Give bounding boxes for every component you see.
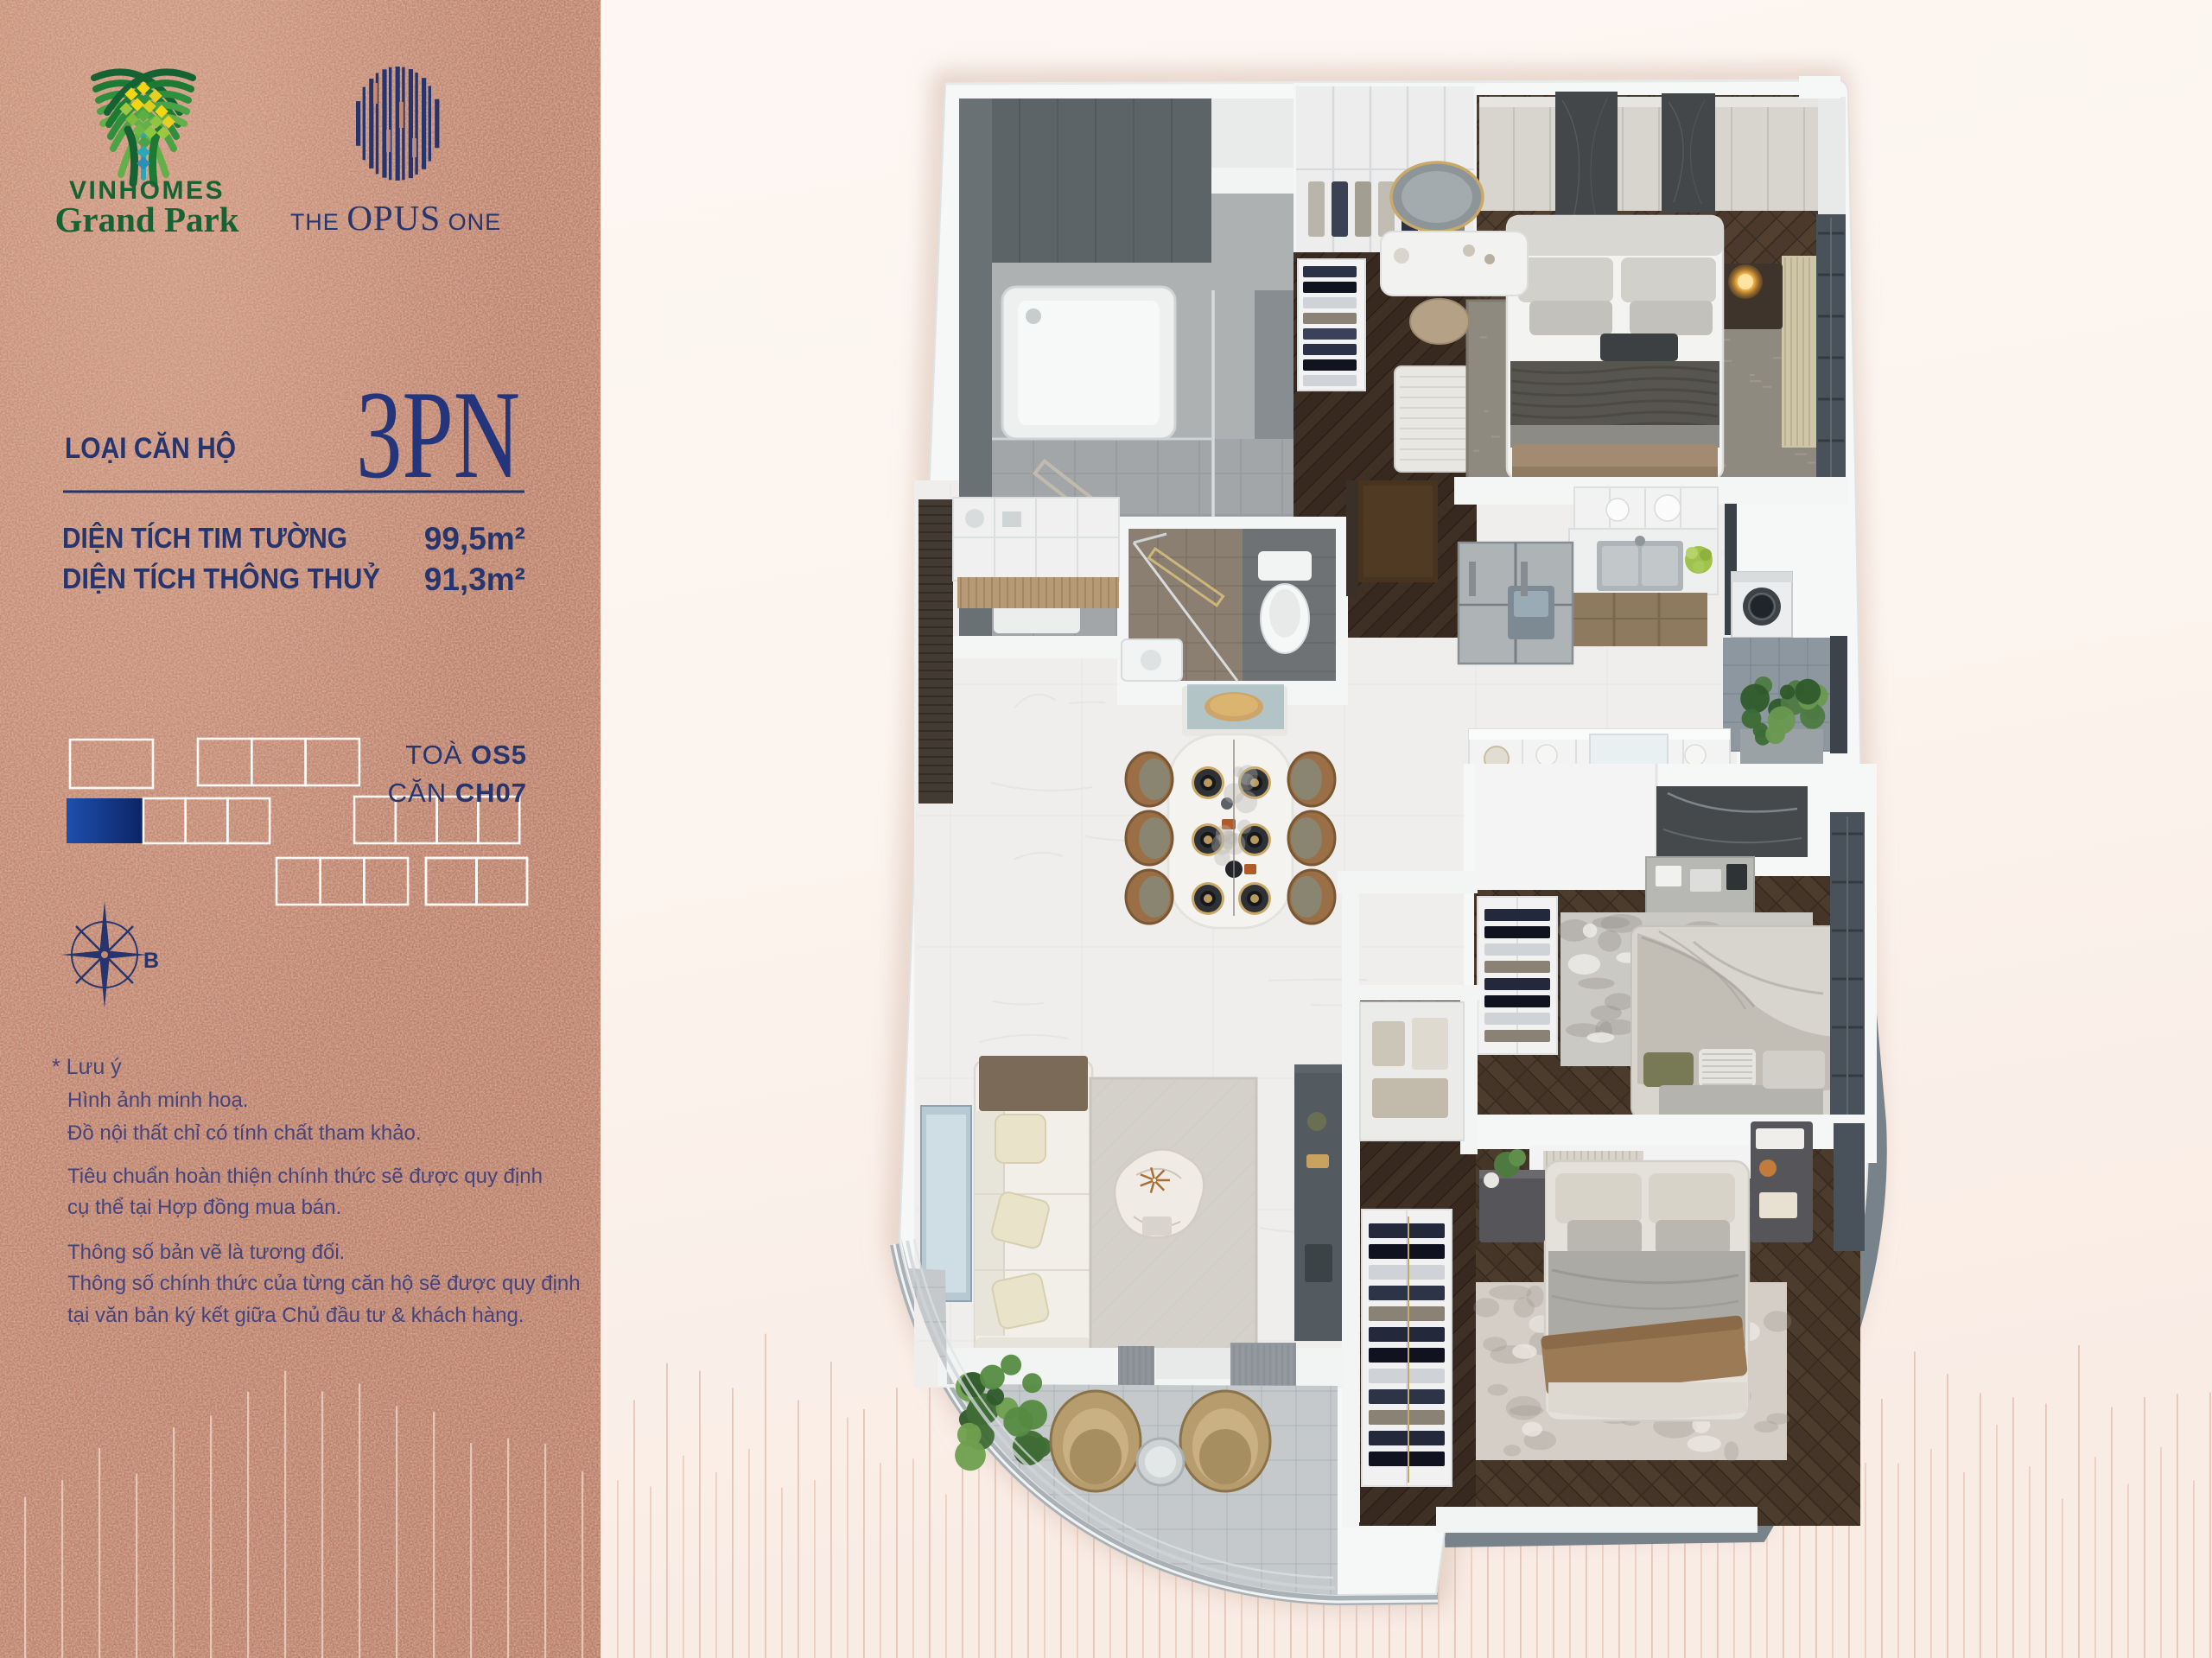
svg-text:tại văn bản ký kết giữa Chủ đầ: tại văn bản ký kết giữa Chủ đầu tư & khá… <box>67 1304 524 1327</box>
svg-text:DIỆN TÍCH TIM TƯỜNG: DIỆN TÍCH TIM TƯỜNG <box>62 522 347 554</box>
svg-text:Hình ảnh minh hoạ.: Hình ảnh minh hoạ. <box>67 1089 248 1112</box>
svg-text:DIỆN TÍCH THÔNG THUỶ: DIỆN TÍCH THÔNG THUỶ <box>62 562 380 594</box>
svg-text:cụ thể tại Hợp đồng mua bán.: cụ thể tại Hợp đồng mua bán. <box>67 1196 341 1219</box>
svg-text:Grand Park: Grand Park <box>55 200 239 239</box>
svg-text:Thông số chính thức của từng c: Thông số chính thức của từng căn hộ sẽ đ… <box>67 1272 581 1295</box>
svg-text:LOẠI CĂN HỘ: LOẠI CĂN HỘ <box>65 431 236 465</box>
svg-text:3PN: 3PN <box>356 365 520 505</box>
svg-text:B: B <box>143 949 159 973</box>
svg-text:91,3m²: 91,3m² <box>424 562 525 597</box>
svg-text:CĂN CH07: CĂN CH07 <box>388 778 527 808</box>
svg-text:TOÀ OS5: TOÀ OS5 <box>405 740 527 770</box>
svg-text:Đồ nội thất chỉ có tính chất t: Đồ nội thất chỉ có tính chất tham khảo. <box>67 1121 422 1145</box>
svg-text:99,5m²: 99,5m² <box>424 521 525 556</box>
svg-text:Tiêu chuẩn hoàn thiện chính th: Tiêu chuẩn hoàn thiện chính thức sẽ được… <box>67 1165 543 1188</box>
svg-text:* Lưu ý: * Lưu ý <box>52 1055 122 1079</box>
svg-text:Thông số bản vẽ là tương đối.: Thông số bản vẽ là tương đối. <box>67 1241 345 1264</box>
